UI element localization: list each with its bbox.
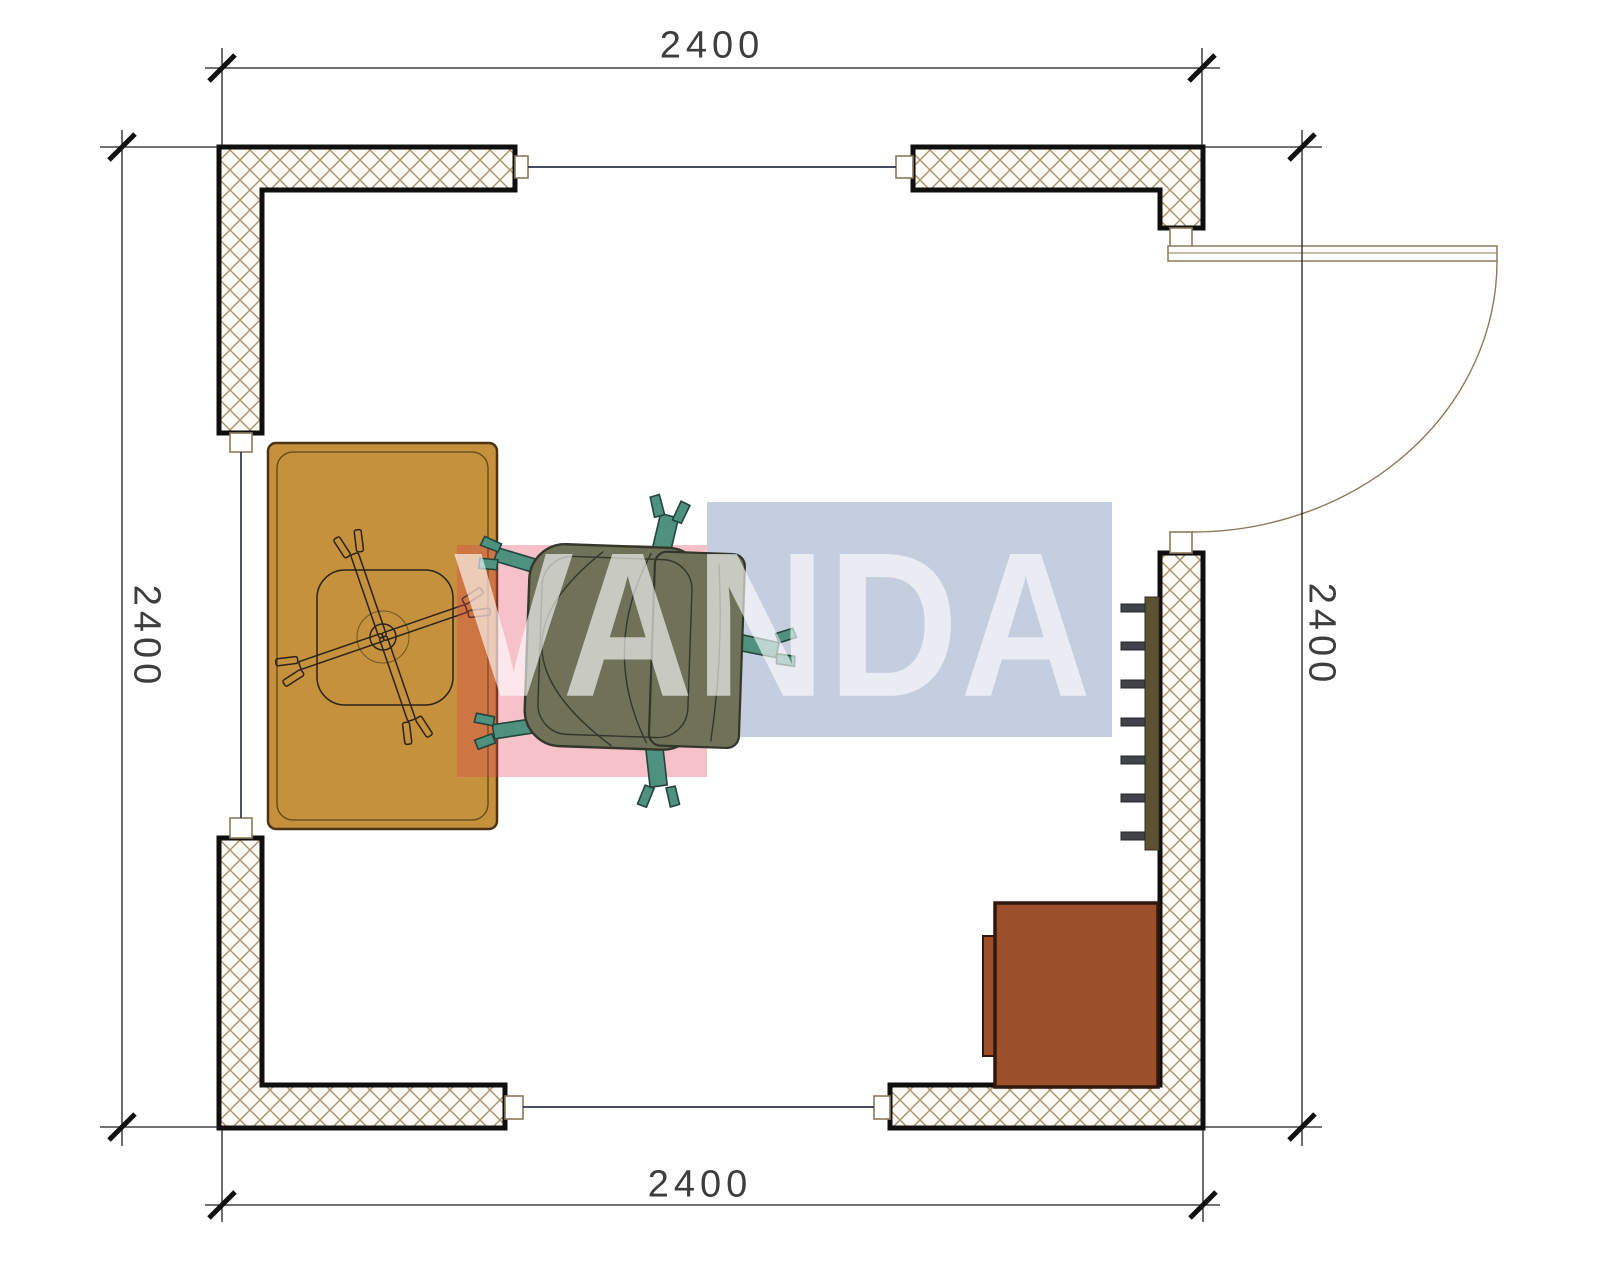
floor-plan-canvas: 2400 2400 2400 2400 <box>0 0 1600 1280</box>
watermark-text: VANDA <box>453 507 1093 744</box>
wall-top-left <box>219 147 515 433</box>
dim-text-top: 2400 <box>660 25 765 68</box>
radiator <box>1121 597 1159 850</box>
wall-bottom-left <box>219 838 505 1128</box>
dim-text-bottom: 2400 <box>648 1164 753 1207</box>
door-jamb-bottom <box>1170 532 1192 553</box>
dim-text-right: 2400 <box>1300 583 1343 688</box>
cabinet <box>983 903 1158 1087</box>
door-jamb-top <box>1170 228 1192 247</box>
door-swing-arc <box>1192 261 1497 532</box>
dim-text-left: 2400 <box>125 585 168 690</box>
wall-top-right <box>913 147 1203 228</box>
door <box>1168 228 1497 553</box>
